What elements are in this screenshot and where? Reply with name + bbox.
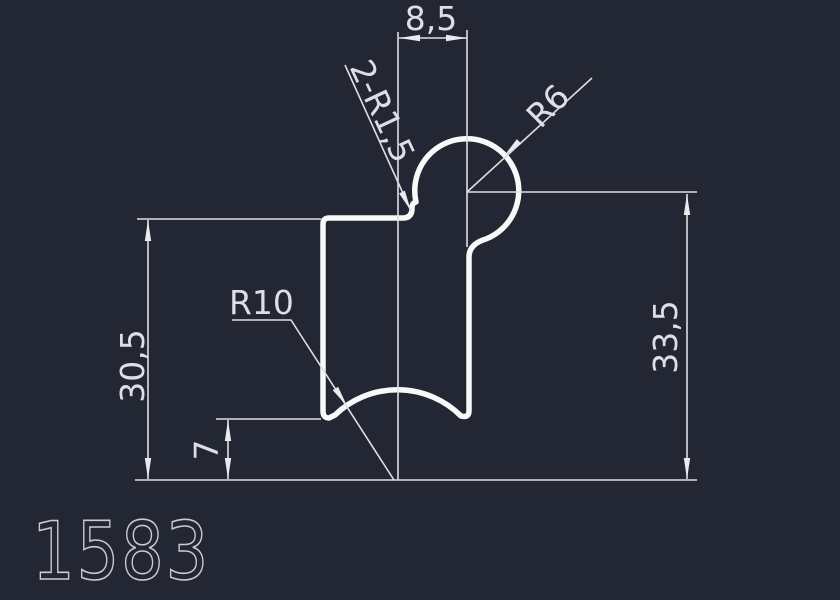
part-number-text: 1583	[32, 505, 210, 598]
arrowhead-bottom-offset-top	[225, 420, 231, 441]
arrowhead-right-height-bottom	[684, 458, 690, 479]
leader-line-groove-radius	[232, 320, 394, 480]
arrowhead-left-height-bottom	[145, 458, 151, 479]
dimension-text-right-height: 33,5	[646, 300, 685, 373]
dimension-text-bottom-offset: 7	[187, 440, 226, 461]
arrowhead-left-height-top	[145, 220, 151, 241]
arrowhead-right-height-top	[684, 194, 690, 215]
cad-drawing-canvas: 8,5 2-R1,5 R6 R10 30,5 33,5 7 1583	[0, 0, 840, 600]
dimension-text-corner-fillets: 2-R1,5	[342, 54, 423, 169]
dimension-text-top-width: 8,5	[405, 0, 457, 38]
profile-drawing: 8,5 2-R1,5 R6 R10 30,5 33,5 7 1583	[0, 0, 840, 600]
part-profile-outline	[323, 139, 519, 418]
arrowhead-head-radius	[502, 139, 522, 158]
dimension-text-head-radius: R6	[519, 77, 578, 136]
leader-line-head-radius	[467, 78, 592, 192]
dimension-text-groove-radius: R10	[229, 283, 294, 322]
dimension-text-left-height: 30,5	[113, 329, 152, 402]
